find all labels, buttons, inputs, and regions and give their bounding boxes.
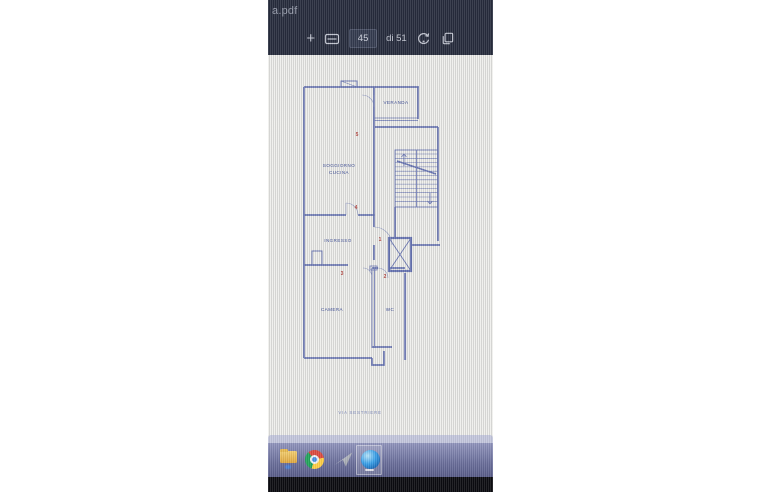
pdf-viewer-header: a.pdf + 45 di 51 xyxy=(268,0,493,55)
taskbar-item-edge-active[interactable] xyxy=(356,445,382,475)
taskbar xyxy=(268,443,493,477)
floor-plan-walls xyxy=(304,81,440,365)
pages-button[interactable] xyxy=(440,31,455,46)
pages-icon xyxy=(440,31,455,46)
marker-5: 5 xyxy=(356,132,359,138)
room-label-wc: WC xyxy=(386,307,395,312)
fit-width-icon xyxy=(324,31,340,47)
fit-width-button[interactable] xyxy=(324,31,340,47)
taskbar-item-file-explorer[interactable] xyxy=(276,443,302,477)
street-label: VIA SESTRIERE xyxy=(338,410,382,415)
screen-photo: a.pdf + 45 di 51 xyxy=(268,0,493,492)
marker-4: 4 xyxy=(355,205,358,211)
rotate-button[interactable] xyxy=(416,31,431,46)
marker-1: 1 xyxy=(379,237,382,243)
pdf-toolbar: + 45 di 51 xyxy=(268,29,493,48)
room-label-veranda: VERANDA xyxy=(383,100,409,105)
taskbar-item-chrome[interactable] xyxy=(302,443,328,477)
active-app-indicator xyxy=(365,469,374,471)
taskbar-item-photos[interactable] xyxy=(331,443,357,477)
monitor-bezel xyxy=(268,477,493,492)
zoom-in-button[interactable]: + xyxy=(306,31,315,46)
photos-icon xyxy=(334,451,353,468)
room-label-cucina: CUCINA xyxy=(329,170,350,175)
taskbar-highlight xyxy=(268,435,493,443)
room-label-soggiorno: SOGGIORNO xyxy=(323,163,355,168)
chrome-icon xyxy=(305,450,324,469)
marker-3: 3 xyxy=(341,271,344,277)
pdf-viewport[interactable]: VERANDA SOGGIORNO CUCINA INGRESSO CAMERA… xyxy=(268,55,493,435)
marker-2: 2 xyxy=(384,274,387,280)
room-label-ingresso: INGRESSO xyxy=(324,238,351,243)
filename-label: a.pdf xyxy=(272,5,297,17)
floor-plan-markers: 5 4 1 3 2 xyxy=(341,132,387,280)
page-number-input[interactable]: 45 xyxy=(349,29,377,48)
rotate-icon xyxy=(416,31,431,46)
page-count-label: di 51 xyxy=(386,33,407,44)
floor-plan-doors xyxy=(346,95,392,278)
floor-plan: VERANDA SOGGIORNO CUCINA INGRESSO CAMERA… xyxy=(268,55,493,435)
edge-icon xyxy=(361,450,380,469)
file-explorer-icon xyxy=(280,451,297,463)
room-label-camera: CAMERA xyxy=(321,307,344,312)
floor-plan-room-labels: VERANDA SOGGIORNO CUCINA INGRESSO CAMERA… xyxy=(321,100,409,312)
